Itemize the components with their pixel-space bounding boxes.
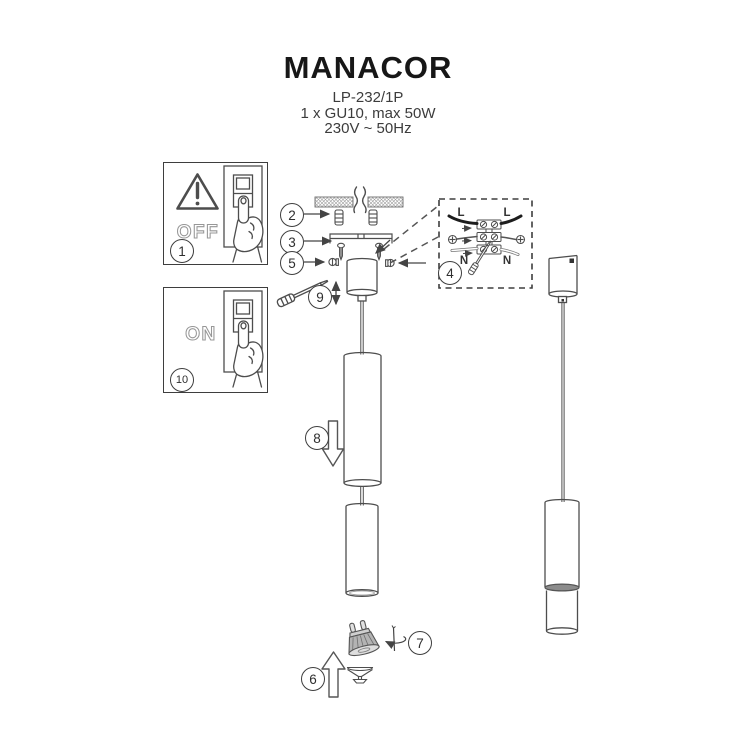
on-label: ON (185, 324, 217, 345)
instruction-sheet: MANACOR LP-232/1P 1 x GU10, max 50W 230V… (0, 0, 750, 750)
live-label-right: L (503, 207, 510, 219)
lamp-tube (344, 353, 381, 506)
gu10-bulb-icon (342, 618, 380, 658)
step-1-badge: 1 (170, 239, 194, 263)
mounting-bracket (330, 234, 392, 244)
rotate-arrow-icon (386, 626, 406, 652)
canopy (347, 259, 377, 355)
step-10-badge: 10 (170, 368, 194, 392)
set-screw-right (386, 259, 395, 266)
assembled-lamp (545, 256, 579, 635)
wall-anchors (335, 210, 377, 225)
step-9-badge: 9 (308, 285, 332, 309)
terminal-block (477, 220, 501, 254)
diagram-canvas: OFF ON (0, 0, 750, 750)
warning-triangle-icon (178, 175, 218, 209)
step-7-badge: 7 (408, 631, 432, 655)
live-label-left: L (457, 207, 464, 219)
set-screw-left (329, 258, 339, 265)
neutral-label-right: N (503, 255, 511, 267)
supply-wires (354, 187, 366, 213)
lamp-shade (346, 504, 378, 597)
glass-diffuser-icon (348, 668, 373, 684)
ceiling-hatch (315, 197, 403, 207)
step-2-badge: 2 (280, 203, 304, 227)
step-6-badge: 6 (301, 667, 325, 691)
insert-up-arrow (322, 652, 345, 697)
step-4-badge: 4 (438, 261, 462, 285)
mounting-screws (338, 243, 383, 259)
light-switch-hand-on-icon (224, 291, 263, 387)
neutral-label-left: N (460, 255, 468, 267)
step-5-badge: 5 (280, 251, 304, 275)
light-switch-hand-off-icon (224, 166, 263, 262)
step-8-badge: 8 (305, 426, 329, 450)
